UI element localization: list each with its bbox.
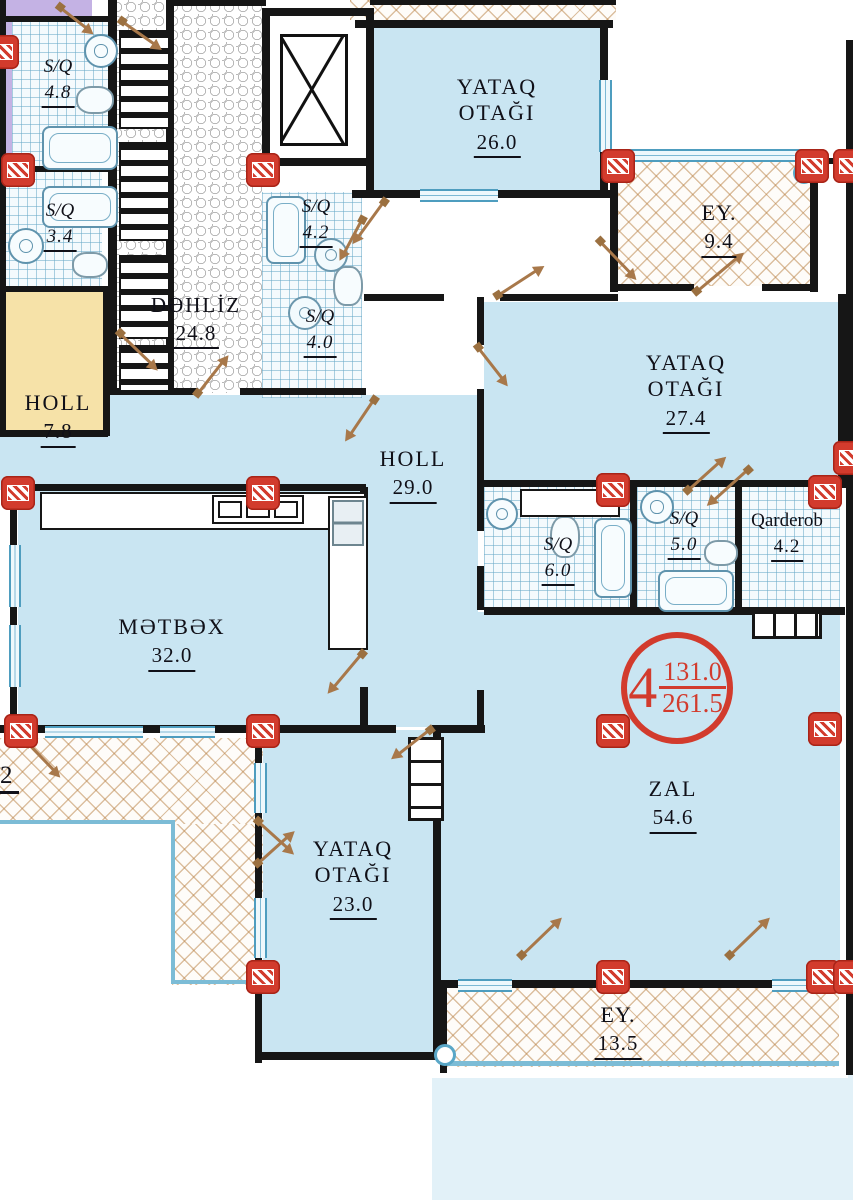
terrace-floor — [0, 738, 263, 824]
kitchen-counter — [40, 492, 366, 530]
bathtub-icon — [42, 126, 118, 170]
window — [618, 149, 812, 162]
room-label-sq-40: S/Q 4.0 — [304, 306, 337, 358]
edge-partial-area-label: 2 — [0, 762, 19, 794]
wall-segment — [477, 690, 484, 730]
window — [45, 726, 143, 738]
balcony-ey13-floor — [447, 985, 839, 1067]
wall-segment — [477, 297, 484, 345]
structural-column — [808, 712, 842, 746]
structural-column — [246, 960, 280, 994]
shower-icon — [8, 228, 44, 264]
wall-segment — [477, 480, 845, 487]
stair-treads — [119, 142, 170, 241]
window — [254, 898, 267, 958]
structural-column — [596, 473, 630, 507]
wardrobe-icon — [408, 737, 444, 821]
room-label-ey-9: EY. 9.4 — [701, 200, 736, 258]
wall-segment — [477, 566, 484, 610]
window — [458, 979, 512, 992]
outside-area — [432, 1078, 853, 1200]
toilet-icon — [76, 86, 114, 114]
kitchen-sink-icon — [332, 500, 364, 546]
drain-ring-icon — [434, 1044, 456, 1066]
wall-segment — [355, 20, 613, 28]
wall-segment — [262, 8, 374, 16]
wall-segment — [366, 20, 374, 198]
wall-segment — [10, 490, 17, 728]
structural-column — [596, 960, 630, 994]
door-swing — [497, 266, 542, 297]
wall-segment — [762, 284, 818, 291]
wall-segment — [477, 389, 484, 482]
wall-segment — [262, 8, 270, 166]
wall-segment — [103, 286, 110, 436]
wall-segment — [0, 16, 116, 22]
wall-segment — [477, 487, 484, 531]
wall-segment — [846, 40, 853, 1075]
unit-area-fraction: 131.0 261.5 — [659, 658, 726, 719]
structural-column — [833, 149, 853, 183]
room-label-qarderob: Qarderob 4.2 — [751, 510, 823, 562]
structural-column — [246, 153, 280, 187]
wardrobe-icon — [752, 611, 822, 639]
room-label-sq-34: S/Q 3.4 — [44, 200, 77, 252]
railing — [171, 820, 175, 984]
structural-column — [4, 714, 38, 748]
structural-column — [795, 149, 829, 183]
wall-segment — [364, 294, 444, 301]
room-label-sq-42: S/Q 4.2 — [300, 196, 333, 248]
bathtub-icon — [594, 518, 632, 598]
unit-badge: 4 131.0 261.5 — [621, 632, 733, 744]
structural-column — [0, 35, 19, 69]
floor-plan: S/Q 4.8 S/Q 3.4 DƏHLİZ 24.8 HOLL 7.8 YAT… — [0, 0, 853, 1200]
wall-segment — [170, 0, 266, 6]
structural-column — [833, 960, 853, 994]
unit-number: 4 — [628, 659, 657, 717]
toilet-icon — [704, 540, 738, 566]
wall-segment — [240, 388, 366, 395]
toilet-icon — [333, 266, 363, 306]
window — [420, 189, 498, 202]
room-label-dehliz: DƏHLİZ 24.8 — [151, 293, 241, 349]
railing — [0, 820, 175, 824]
window — [160, 726, 215, 738]
room-label-yataq-26: YATAQ OTAĞI 26.0 — [457, 74, 537, 158]
window — [9, 545, 21, 607]
structural-column — [246, 714, 280, 748]
structural-column — [596, 714, 630, 748]
room-label-yataq-23: YATAQ OTAĞI 23.0 — [313, 836, 393, 920]
structural-column — [833, 441, 853, 475]
wall-segment — [360, 687, 368, 729]
window — [599, 80, 612, 152]
structural-column — [601, 149, 635, 183]
railing — [447, 1061, 839, 1066]
room-label-sq-60: S/Q 6.0 — [542, 534, 575, 586]
structural-column — [246, 476, 280, 510]
room-label-holl-7: HOLL 7.8 — [25, 390, 92, 448]
structural-column — [808, 475, 842, 509]
structural-column — [1, 476, 35, 510]
wall-segment — [0, 292, 6, 432]
room-label-metbex: MƏTBƏX 32.0 — [118, 614, 225, 672]
wall-segment — [0, 0, 6, 162]
room-label-ey-13: EY. 13.5 — [595, 1002, 642, 1060]
toilet-icon — [72, 252, 108, 278]
shower-icon — [486, 498, 518, 530]
wall-segment — [370, 0, 616, 5]
window — [254, 763, 267, 813]
wall-segment — [255, 1052, 447, 1060]
room-label-yataq-27: YATAQ OTAĞI 27.4 — [646, 350, 726, 434]
wall-segment — [610, 284, 694, 291]
structural-column — [1, 153, 35, 187]
wall-segment — [14, 484, 366, 491]
stair-treads — [119, 345, 170, 392]
room-label-zal: ZAL 54.6 — [649, 776, 698, 834]
bathtub-icon — [658, 570, 734, 612]
wall-segment — [433, 725, 485, 733]
wall-segment — [500, 294, 618, 301]
room-label-sq-50: S/Q 5.0 — [668, 508, 701, 560]
wall-segment — [0, 286, 110, 292]
shower-icon — [84, 34, 118, 68]
window — [9, 625, 21, 687]
room-label-sq-48: S/Q 4.8 — [42, 56, 75, 108]
room-label-holl-29: HOLL 29.0 — [380, 446, 447, 504]
